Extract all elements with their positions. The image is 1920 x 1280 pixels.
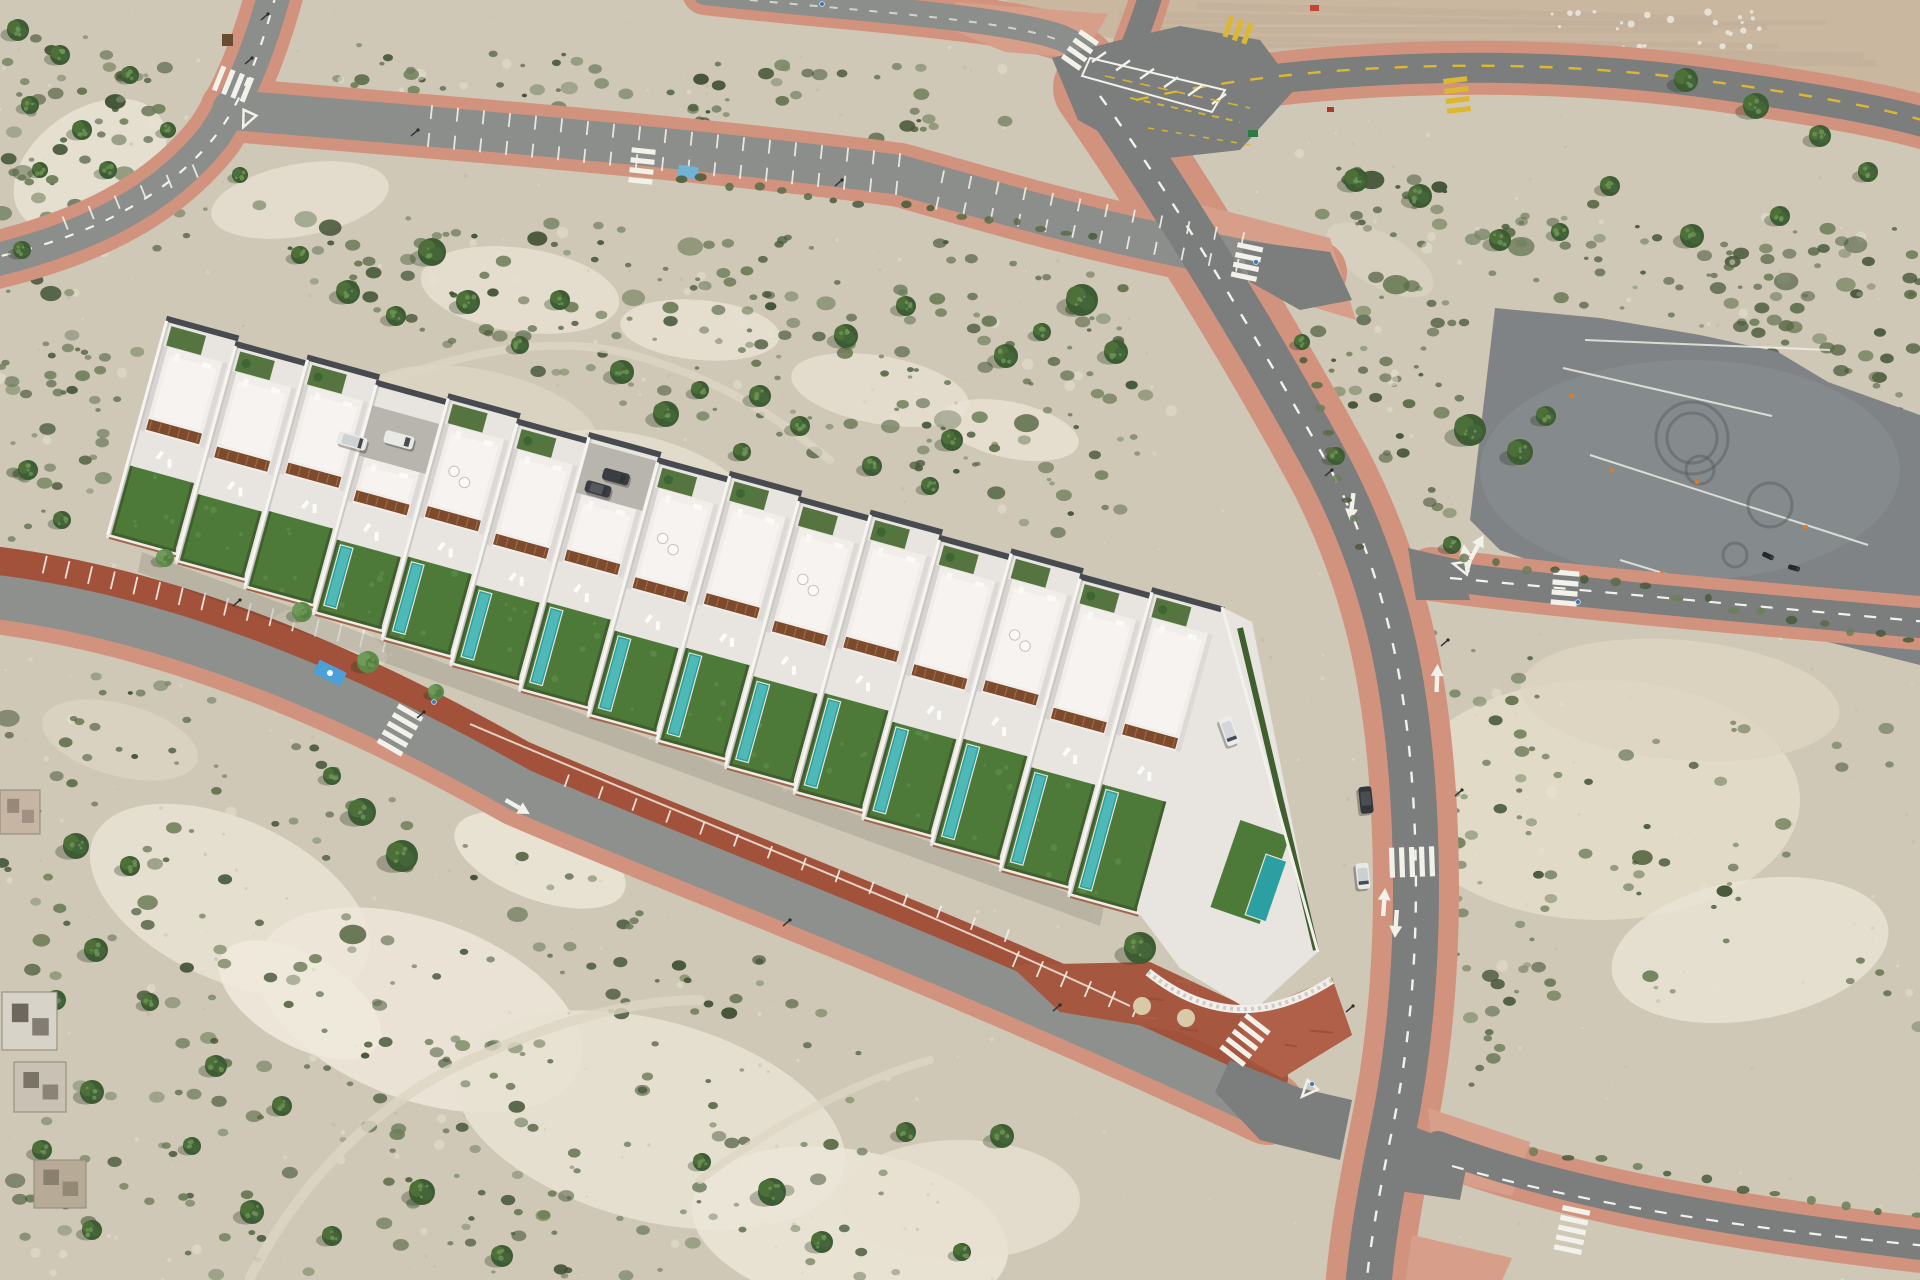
- roadside-bush: [1846, 628, 1854, 636]
- car: [1353, 862, 1371, 891]
- roadside-bush: [1595, 1155, 1607, 1162]
- roadside-bush: [1323, 430, 1334, 436]
- roadside-bush: [1014, 218, 1021, 225]
- roadside-bush: [1610, 577, 1621, 586]
- ruined-building: [34, 1160, 86, 1208]
- roadside-bush: [777, 187, 787, 194]
- roadside-bush: [1876, 630, 1886, 637]
- roadside-bush: [1299, 357, 1307, 363]
- aerial-photo-stage: [0, 0, 1920, 1280]
- roadside-bush: [695, 173, 707, 181]
- roadside-bush: [804, 193, 812, 200]
- waste-container: [1248, 130, 1258, 137]
- red-container: [1327, 107, 1334, 112]
- roadside-bush: [1737, 1186, 1750, 1194]
- roadside-bush: [676, 176, 688, 184]
- traffic-cone: [1570, 394, 1574, 398]
- roadside-bush: [1640, 583, 1652, 590]
- roadside-bush: [1807, 1196, 1816, 1205]
- roadside-bush: [1874, 1208, 1882, 1215]
- sand-patch: [840, 1140, 1080, 1260]
- traffic-sign: [1254, 260, 1259, 265]
- planter: [1133, 997, 1151, 1015]
- roadside-bush: [956, 214, 967, 220]
- ruined-building: [0, 790, 40, 834]
- ruined-building: [2, 992, 57, 1050]
- traffic-sign: [432, 700, 437, 705]
- roadside-bush: [1705, 594, 1712, 602]
- roadside-bush: [1311, 382, 1322, 389]
- roadside-bush: [1315, 404, 1325, 411]
- traffic-sign: [1310, 1082, 1315, 1087]
- roadside-bush: [1786, 616, 1797, 625]
- roadside-bush: [755, 182, 765, 190]
- roadside-bush: [984, 216, 993, 224]
- roadside-bush: [1903, 637, 1915, 642]
- roadside-bush: [926, 205, 934, 211]
- traffic-cone: [1804, 525, 1808, 529]
- roadside-bush: [1728, 607, 1740, 614]
- roadside-bush: [1332, 474, 1342, 482]
- planter: [1177, 1009, 1195, 1027]
- roadside-bush: [1492, 558, 1500, 566]
- roadside-bush: [1325, 447, 1334, 454]
- roadside-bush: [1459, 553, 1469, 562]
- roadside-bush: [1671, 595, 1683, 602]
- roadside-bush: [1663, 1171, 1671, 1177]
- roadside-bush: [725, 183, 733, 191]
- roadside-bush: [1355, 544, 1365, 550]
- roadside-bush: [1562, 1155, 1574, 1161]
- ruined-building: [14, 1062, 66, 1112]
- traffic-sign: [820, 2, 825, 7]
- roadside-bush: [1529, 1147, 1538, 1156]
- roadside-bush: [1820, 620, 1829, 627]
- roadside-bush: [1756, 607, 1765, 614]
- red-container: [1310, 5, 1319, 11]
- roadside-bush: [829, 197, 837, 203]
- car: [1356, 786, 1374, 816]
- roadside-bush: [1088, 233, 1097, 240]
- traffic-sign: [1576, 600, 1581, 605]
- roadside-kiosk: [222, 34, 233, 46]
- roadside-bush: [1633, 1163, 1643, 1170]
- roadside-bush: [1035, 226, 1046, 232]
- roadside-bush: [901, 201, 912, 209]
- roadside-bush: [852, 201, 864, 208]
- roadside-bush: [1350, 515, 1357, 522]
- aerial-photo: [0, 0, 1920, 1280]
- roadside-bush: [1769, 1191, 1780, 1196]
- traffic-cone: [1695, 480, 1699, 484]
- roadside-bush: [1522, 566, 1531, 575]
- roadside-bush: [1550, 566, 1559, 572]
- traffic-cone: [1610, 468, 1614, 472]
- roadside-bush: [1342, 497, 1352, 502]
- roadside-bush: [1701, 1175, 1712, 1184]
- roadside-bush: [1580, 575, 1589, 584]
- roadside-bush: [1060, 231, 1071, 236]
- roadside-bush: [1842, 1201, 1851, 1210]
